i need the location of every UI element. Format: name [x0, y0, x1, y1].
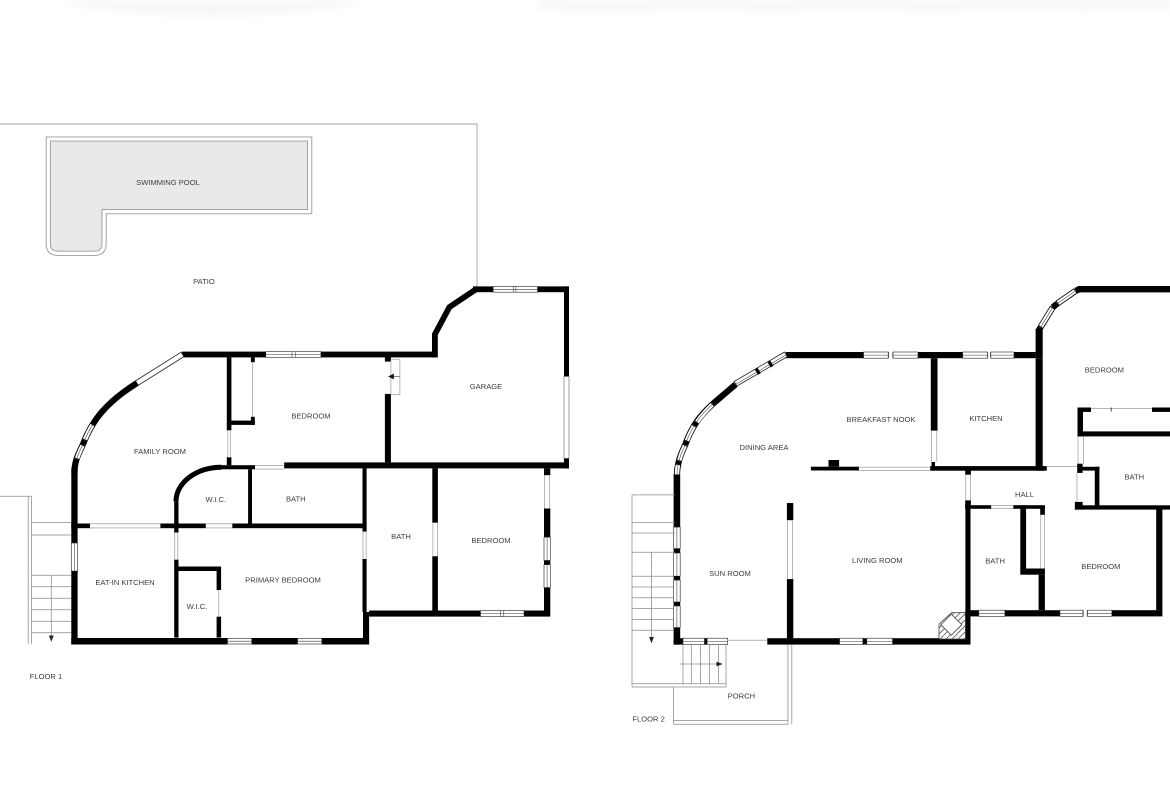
svg-text:BEDROOM: BEDROOM: [291, 412, 330, 421]
svg-text:BATH: BATH: [391, 532, 411, 541]
svg-text:BATH: BATH: [985, 556, 1005, 565]
svg-text:FLOOR 1: FLOOR 1: [30, 672, 63, 681]
svg-text:HALL: HALL: [1015, 490, 1034, 499]
svg-text:BATH: BATH: [286, 494, 306, 503]
svg-text:GARAGE: GARAGE: [470, 382, 503, 391]
svg-text:DINING AREA: DINING AREA: [740, 443, 790, 452]
svg-text:SUN ROOM: SUN ROOM: [709, 569, 751, 578]
svg-text:BEDROOM: BEDROOM: [471, 536, 510, 545]
svg-text:FLOOR 2: FLOOR 2: [632, 715, 665, 724]
svg-text:SWIMMING POOL: SWIMMING POOL: [136, 178, 200, 187]
svg-text:KITCHEN: KITCHEN: [969, 414, 1002, 423]
svg-text:W.I.C.: W.I.C.: [187, 602, 208, 611]
svg-text:BREAKFAST NOOK: BREAKFAST NOOK: [846, 415, 915, 424]
svg-text:BEDROOM: BEDROOM: [1081, 562, 1120, 571]
svg-text:PORCH: PORCH: [728, 691, 755, 700]
svg-text:FAMILY ROOM: FAMILY ROOM: [134, 447, 186, 456]
svg-text:W.I.C.: W.I.C.: [205, 495, 226, 504]
svg-text:PRIMARY BEDROOM: PRIMARY BEDROOM: [245, 576, 321, 585]
svg-text:EAT-IN KITCHEN: EAT-IN KITCHEN: [95, 578, 154, 587]
svg-text:BEDROOM: BEDROOM: [1085, 366, 1124, 375]
svg-text:LIVING ROOM: LIVING ROOM: [852, 556, 903, 565]
svg-text:PATIO: PATIO: [193, 277, 215, 286]
svg-text:BATH: BATH: [1124, 473, 1144, 482]
